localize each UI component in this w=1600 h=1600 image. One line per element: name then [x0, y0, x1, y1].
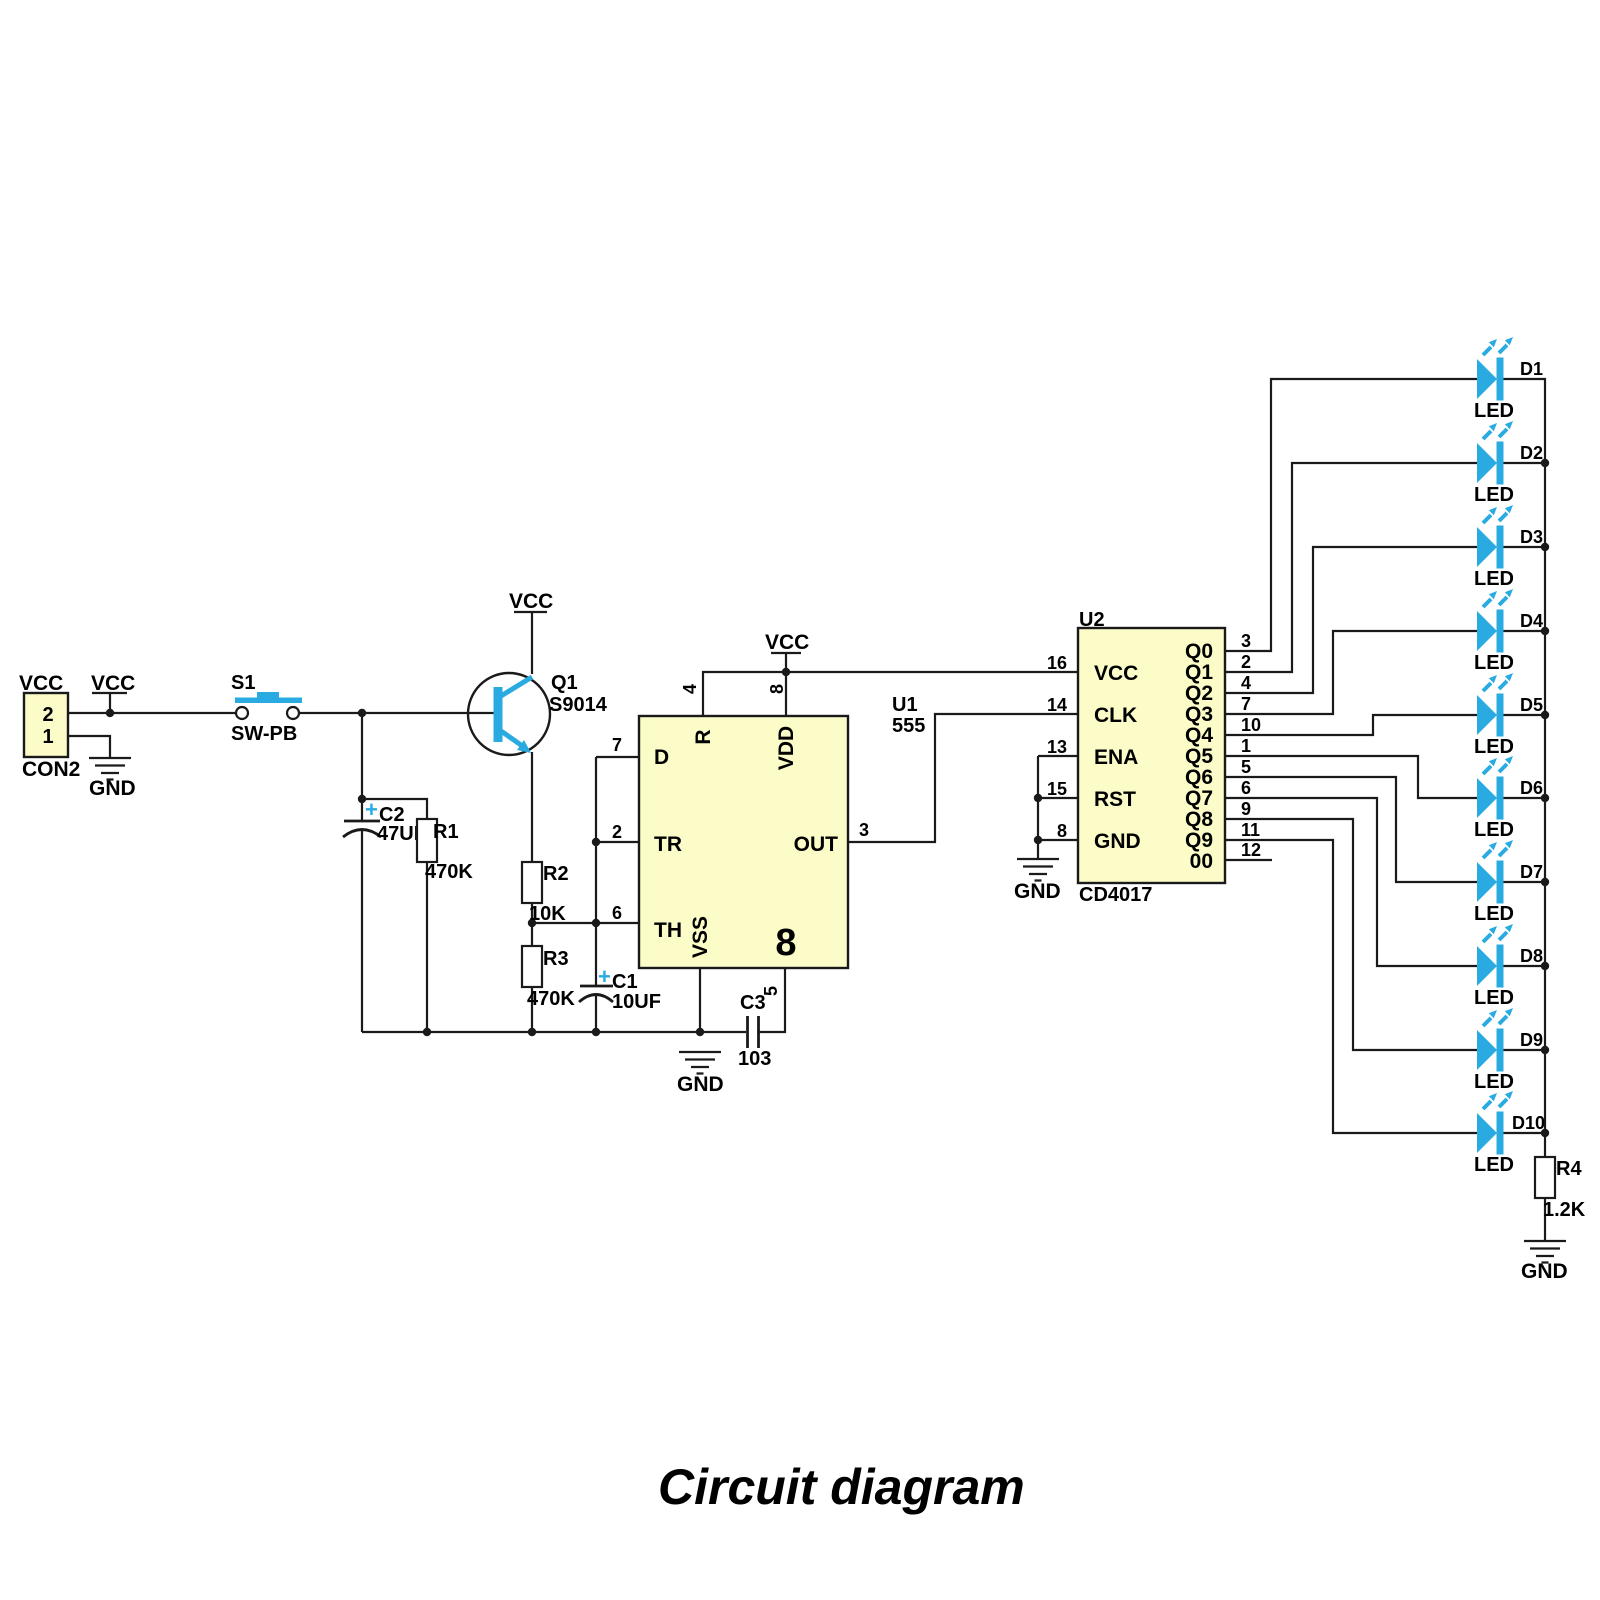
led-d4-ref: D4 [1520, 611, 1543, 631]
u2-pin16-number: 16 [1047, 653, 1067, 673]
u1-pin6-number: 6 [612, 903, 622, 923]
c3-ref: C3 [740, 992, 766, 1014]
u2-q0-label: Q0 [1185, 640, 1213, 663]
led-d6-label: LED [1474, 819, 1514, 841]
capacitor-c1: + C1 10UF [579, 964, 661, 1013]
u1-vss-label: VSS [689, 916, 712, 958]
u1-trigger-label: TR [654, 833, 682, 856]
u2-q1-label: Q1 [1185, 661, 1213, 684]
u2-pin13-number: 13 [1047, 737, 1067, 757]
switch-contact-right [287, 707, 299, 719]
u2-pin1-number: 1 [1241, 736, 1251, 756]
led-d1-label: LED [1474, 400, 1514, 422]
transistor-q1: VCC Q1 S9014 [468, 590, 608, 755]
led-d9-label: LED [1474, 1071, 1514, 1093]
vcc-net-label: VCC [765, 631, 809, 654]
c3-value: 103 [738, 1048, 771, 1070]
r1-ref: R1 [433, 821, 459, 843]
circuit-canvas: VCC 2 1 CON2 VCC GND S1 SW-PB VCC Q1 S90… [0, 0, 1600, 1600]
page-title: Circuit diagram [658, 1459, 1025, 1515]
con2-ref: CON2 [22, 758, 80, 781]
led-d10-label: LED [1474, 1154, 1514, 1176]
resistor-r2: R2 10K [522, 862, 569, 925]
resistor-r1: R1 470K [417, 819, 473, 883]
vcc-net-label: VCC [91, 672, 135, 695]
led-d2-ref: D2 [1520, 443, 1543, 463]
u1-pin2-number: 2 [612, 822, 622, 842]
u2-part: CD4017 [1079, 884, 1152, 906]
u1-part: 555 [892, 715, 925, 737]
r3-body [522, 946, 542, 987]
r2-body [522, 862, 542, 903]
u2-q7-label: Q7 [1185, 787, 1213, 810]
s1-ref: S1 [231, 672, 255, 694]
u2-ena-label: ENA [1094, 746, 1138, 769]
resistor-r3: R3 470K [522, 946, 575, 1010]
switch-contact-left [236, 707, 248, 719]
led-d7-label: LED [1474, 903, 1514, 925]
u1-pin8-number: 8 [767, 684, 787, 694]
con2-pin1-number: 1 [42, 726, 53, 748]
u1-ref: U1 [892, 694, 918, 716]
u2-pin7-number: 7 [1241, 694, 1251, 714]
u2-clk-label: CLK [1094, 704, 1137, 727]
led-d10-ref: D10 [1512, 1113, 1545, 1133]
led-d8-label: LED [1474, 987, 1514, 1009]
u2-pin12-number: 12 [1241, 840, 1261, 860]
led-d5-ref: D5 [1520, 695, 1543, 715]
c2-polarity: + [365, 797, 378, 822]
u2-vcc-label: VCC [1094, 662, 1138, 685]
u1-package-label: 8 [775, 922, 796, 964]
u2-q8-label: Q8 [1185, 808, 1213, 831]
schematic-page: VCC 2 1 CON2 VCC GND S1 SW-PB VCC Q1 S90… [0, 0, 1600, 1600]
led-d6-ref: D6 [1520, 778, 1543, 798]
switch-actuator-bar [235, 698, 302, 704]
r2-ref: R2 [543, 863, 569, 885]
led-d7-ref: D7 [1520, 862, 1543, 882]
u2-q3-label: Q3 [1185, 703, 1213, 726]
gnd-net-label: GND [677, 1073, 724, 1096]
ic-cd4017-u2: U2 CD4017 GND 16 14 13 15 8 VCC CLK ENA … [1014, 609, 1261, 906]
r3-ref: R3 [543, 948, 569, 970]
u2-pin5-number: 5 [1241, 757, 1251, 777]
u2-q6-label: Q6 [1185, 766, 1213, 789]
u2-pin10-number: 10 [1241, 715, 1261, 735]
led-d3-ref: D3 [1520, 527, 1543, 547]
vcc-net-label: VCC [19, 672, 63, 695]
u1-threshold-label: TH [654, 919, 682, 942]
r4-body [1535, 1157, 1555, 1198]
led-d2-label: LED [1474, 484, 1514, 506]
output-feed-wires [1225, 379, 1477, 1133]
con2-pin2-number: 2 [42, 704, 53, 726]
c1-ref: C1 [612, 971, 638, 993]
u2-rst-label: RST [1094, 788, 1136, 811]
switch-actuator-button [257, 692, 279, 698]
vcc-underlines [92, 612, 801, 693]
u2-pin14-number: 14 [1047, 695, 1067, 715]
q1-ref: Q1 [551, 672, 578, 694]
resistor-r4: R4 1.2K GND [1521, 1157, 1586, 1283]
vcc-net-label: VCC [509, 590, 553, 613]
led-d9-ref: D9 [1520, 1030, 1543, 1050]
gnd-net-label: GND [1014, 880, 1061, 903]
r4-ref: R4 [1556, 1158, 1582, 1180]
ic-555-u1: VCC 4 8 7 2 6 3 5 R VDD D TR TH VSS OUT … [612, 631, 925, 996]
gnd-net-label: GND [1521, 1260, 1568, 1283]
gnd-net-label: GND [89, 777, 136, 800]
led-d1-ref: D1 [1520, 359, 1543, 379]
u2-pin3-number: 3 [1241, 631, 1251, 651]
led-d8-ref: D8 [1520, 946, 1543, 966]
u1-pin7-number: 7 [612, 735, 622, 755]
u2-pin15-number: 15 [1047, 779, 1067, 799]
transistor-emitter [501, 731, 521, 745]
gnd-symbol [679, 1052, 721, 1074]
r2-value: 10K [529, 903, 566, 925]
u2-pin6-number: 6 [1241, 778, 1251, 798]
u2-q5-label: Q5 [1185, 745, 1213, 768]
u2-pin9-number: 9 [1241, 799, 1251, 819]
u2-pin8-number: 8 [1057, 821, 1067, 841]
u1-pin4-number: 4 [680, 684, 700, 694]
u2-q9-label: Q9 [1185, 829, 1213, 852]
capacitor-c2: + C2 47UF [343, 797, 426, 845]
u2-gnd-label: GND [1094, 830, 1141, 853]
s1-part: SW-PB [231, 723, 297, 745]
q1-part: S9014 [549, 694, 608, 716]
u1-reset-label: R [692, 729, 715, 744]
c3-plates [748, 1016, 759, 1048]
u1-vdd-label: VDD [775, 726, 798, 770]
u1-out-label: OUT [794, 833, 839, 856]
u2-pin4-number: 4 [1241, 673, 1251, 693]
r4-value: 1.2K [1543, 1199, 1586, 1221]
u2-pin2-number: 2 [1241, 652, 1251, 672]
led-d3-label: LED [1474, 568, 1514, 590]
switch-s1: S1 SW-PB [231, 672, 302, 745]
u1-pin3-number: 3 [859, 820, 869, 840]
led-d5-label: LED [1474, 736, 1514, 758]
u2-q4-label: Q4 [1185, 724, 1213, 747]
transistor-collector [501, 677, 532, 696]
r1-value: 470K [425, 861, 473, 883]
led-d4-label: LED [1474, 652, 1514, 674]
gnd-vss: GND [677, 1052, 724, 1096]
gnd-symbol [1017, 859, 1059, 881]
r3-value: 470K [527, 988, 575, 1010]
u2-q2-label: Q2 [1185, 682, 1213, 705]
u2-carry-label: 00 [1190, 850, 1213, 873]
u2-pin11-number: 11 [1241, 820, 1260, 840]
c1-value: 10UF [612, 991, 661, 1013]
u1-discharge-label: D [654, 746, 669, 769]
